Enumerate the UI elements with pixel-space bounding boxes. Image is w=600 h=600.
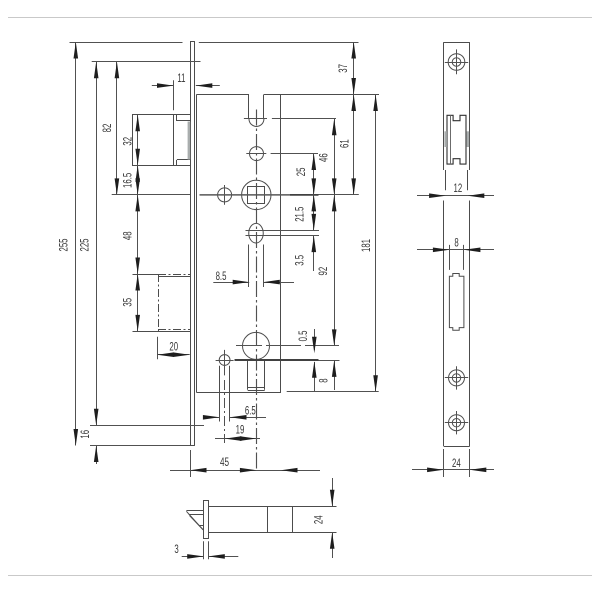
- svg-text:32: 32: [122, 137, 135, 146]
- svg-text:16: 16: [80, 430, 93, 439]
- svg-text:181: 181: [361, 239, 374, 252]
- svg-text:24: 24: [452, 458, 461, 471]
- svg-text:11: 11: [177, 73, 185, 86]
- svg-text:12: 12: [454, 183, 463, 196]
- svg-text:82: 82: [102, 124, 115, 133]
- svg-text:45: 45: [220, 457, 229, 470]
- svg-text:0.5: 0.5: [298, 330, 311, 341]
- svg-text:16.5: 16.5: [122, 172, 135, 188]
- svg-text:24: 24: [313, 515, 326, 524]
- svg-text:3: 3: [174, 543, 179, 556]
- svg-text:21.5: 21.5: [294, 206, 307, 222]
- svg-text:48: 48: [122, 231, 135, 240]
- svg-text:3.5: 3.5: [294, 254, 307, 265]
- svg-text:25: 25: [296, 167, 309, 176]
- svg-text:255: 255: [58, 238, 71, 251]
- svg-text:37: 37: [338, 64, 351, 73]
- svg-text:225: 225: [79, 238, 92, 251]
- svg-text:6.5: 6.5: [245, 405, 256, 418]
- svg-text:92: 92: [318, 267, 331, 276]
- svg-text:35: 35: [122, 298, 135, 307]
- svg-text:19: 19: [236, 424, 245, 437]
- svg-text:20: 20: [169, 341, 178, 354]
- svg-text:8.5: 8.5: [216, 271, 227, 284]
- svg-text:8: 8: [318, 378, 331, 383]
- svg-text:61: 61: [339, 139, 352, 148]
- svg-text:46: 46: [318, 153, 331, 162]
- svg-text:8: 8: [454, 237, 459, 250]
